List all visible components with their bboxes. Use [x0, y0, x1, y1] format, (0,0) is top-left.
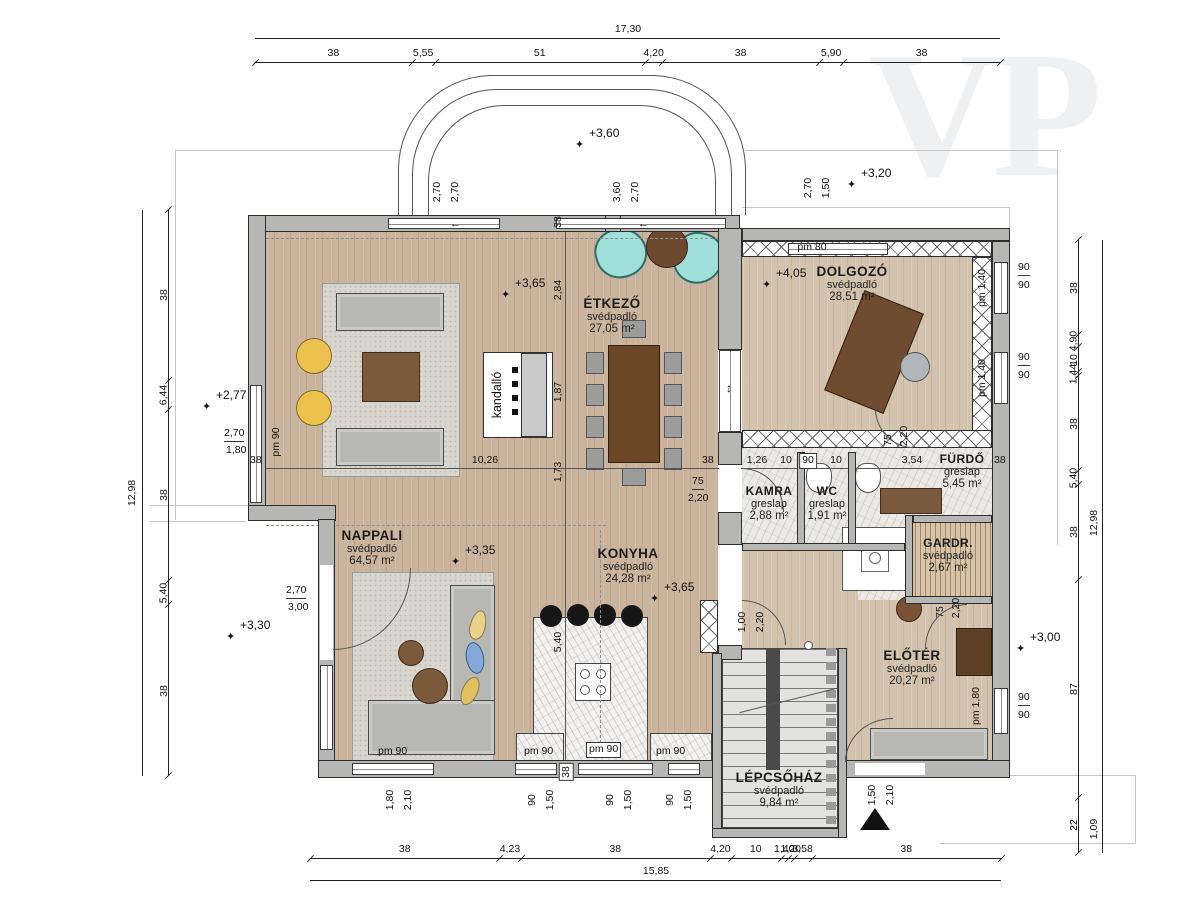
wall-segment — [905, 515, 913, 600]
dim-total-line — [255, 38, 1000, 39]
dim: 10 — [780, 455, 792, 467]
dim-chain-bottom: 384,23384,20101,401,203,5838 — [310, 858, 1001, 859]
wall-xhatch — [700, 600, 718, 653]
dim: 3,60 — [612, 182, 623, 202]
dim: 1,80 — [226, 445, 246, 457]
room-label-furdo: FÜRDŐ greslap 5,45 m² — [940, 452, 985, 490]
site-line — [175, 150, 400, 151]
dim: 75 — [883, 434, 894, 446]
dim: 1,50 — [867, 785, 878, 805]
level-value: +3,35 — [465, 543, 495, 557]
dim: 2,10 — [885, 785, 896, 805]
level-value: +3,65 — [515, 276, 545, 290]
wall-segment — [905, 596, 992, 604]
dim-total-line — [1102, 806, 1103, 853]
dim: 75 — [935, 606, 946, 618]
window — [668, 763, 700, 775]
arch-outline-inner — [428, 105, 716, 215]
coffee-table-round — [412, 668, 448, 704]
armchair-yellow — [296, 390, 332, 426]
room-label-gardrob: GARDR. svédpadló 2,67 m² — [923, 536, 973, 574]
dim: 90 — [1018, 280, 1030, 292]
fireplace-flue — [521, 353, 547, 437]
dim: pm 90 — [656, 746, 685, 758]
dim-segment: 5,90 — [821, 47, 841, 59]
window — [515, 763, 557, 775]
dim-segment: 4,20 — [643, 47, 663, 59]
ledge-line — [742, 207, 1010, 208]
level-value: +3,60 — [589, 126, 619, 140]
dim: 2,10 — [403, 790, 414, 810]
entry-door-opening — [855, 763, 925, 775]
slide-arrow-icon: ← — [638, 218, 649, 230]
dim: 90 — [1018, 352, 1030, 366]
dim: 1,50 — [683, 790, 694, 810]
dim: 2,20 — [951, 598, 962, 618]
dim: 2,70 — [630, 182, 641, 202]
level-marker-icon: ✦ — [1016, 642, 1025, 655]
dim: 2,70 — [224, 428, 244, 442]
dim: 2,20 — [688, 493, 708, 505]
dim: 38 — [994, 455, 1006, 467]
dim-segment: 38 — [1068, 418, 1080, 430]
door-opening — [719, 465, 741, 512]
window — [994, 688, 1008, 734]
dim: 38 — [702, 455, 714, 467]
bar-stool — [594, 604, 616, 626]
dim: 2,20 — [899, 426, 910, 446]
wall-segment — [742, 228, 1010, 241]
fireplace-label: kandalló — [491, 372, 504, 419]
room-label-wc: WC greslap 1,91 m² — [808, 484, 847, 522]
level-marker-icon: ✦ — [650, 592, 659, 605]
dim: 90 — [1018, 692, 1030, 706]
dim: 38 — [553, 216, 564, 228]
dim: 1,50 — [623, 790, 634, 810]
dim: 1,50 — [545, 790, 556, 810]
room-label-eloter: ELŐTÉR svédpadló 20,27 m² — [883, 648, 940, 687]
level-value: +3,65 — [664, 580, 694, 594]
wall-segment — [712, 653, 722, 838]
site-line — [745, 150, 1057, 151]
dim: 10,26 — [472, 455, 498, 467]
dining-chair — [664, 448, 682, 470]
dim-segment: 5,55 — [413, 47, 433, 59]
side-table-round — [646, 226, 688, 268]
dim-chain-right: 384,90101,44385,40388722 — [1078, 240, 1079, 853]
wall-segment — [718, 432, 742, 465]
dim: 90 — [1018, 262, 1030, 276]
level-marker-icon: ✦ — [202, 400, 211, 413]
sofa — [336, 293, 444, 331]
slide-arrow-icon: ↕ — [726, 382, 732, 395]
dim-segment: 38 — [1068, 282, 1080, 294]
wall-segment — [913, 515, 992, 523]
room-label-kamra: KAMRA greslap 2,88 m² — [746, 484, 793, 522]
dim: 90 — [605, 794, 616, 806]
floor-plan: VP kandalló — [0, 0, 1200, 919]
dim: 90 — [1018, 710, 1030, 722]
window — [352, 763, 434, 775]
level-marker-icon: ✦ — [847, 178, 856, 191]
site-line — [1010, 775, 1135, 776]
room-label-dolgozo: DOLGOZÓ svédpadló 28,51 m² — [816, 264, 887, 303]
bar-stool — [621, 605, 643, 627]
room-label-etkezo: ÉTKEZŐ svédpadló 27,05 m² — [583, 296, 640, 335]
dim-segment: 38 — [916, 47, 928, 59]
dim-segment: 38 — [735, 47, 747, 59]
dim-line — [565, 232, 566, 762]
dim-segment: 38 — [900, 843, 912, 855]
cooktop — [575, 663, 611, 701]
dim-segment: 6,44 — [157, 385, 169, 405]
dim-segment: 38 — [1068, 527, 1080, 539]
dim: 90 — [1018, 370, 1030, 382]
wall-segment — [742, 543, 905, 551]
dim-segment: 51 — [534, 47, 546, 59]
coffee-table — [362, 352, 420, 402]
level-value: +3,20 — [861, 166, 891, 180]
dining-table — [608, 345, 660, 463]
wall-segment — [848, 452, 856, 545]
wall-xhatch — [742, 430, 992, 448]
door-opening — [320, 565, 333, 660]
dim-total: 1,09 — [1089, 819, 1100, 839]
window — [994, 352, 1008, 404]
dim-total: 17,30 — [615, 24, 641, 36]
dim-segment: 4,20 — [710, 843, 730, 855]
dim: 90 — [527, 794, 538, 806]
dim: pm 1,40 — [977, 359, 988, 397]
level-value: +4,05 — [776, 266, 806, 280]
dining-chair — [664, 384, 682, 406]
wall-segment — [718, 512, 742, 545]
dim-total-line — [142, 210, 143, 776]
dim-segment: 38 — [328, 47, 340, 59]
level-value: +3,30 — [240, 618, 270, 632]
dim-segment: 38 — [399, 843, 411, 855]
site-line — [175, 150, 176, 520]
stair-railing — [826, 648, 836, 828]
dim-total: 15,85 — [643, 866, 669, 878]
room-label-nappali: NAPPALI svédpadló 64,57 m² — [341, 528, 402, 567]
dim-chain-top: 385,55514,20385,9038 — [255, 62, 1000, 63]
dim-total-line — [310, 880, 1001, 881]
dim: pm 1,80 — [971, 687, 982, 725]
dim: pm 90 — [524, 746, 553, 758]
bar-stool — [567, 604, 589, 626]
stair-stringer — [766, 648, 780, 770]
dim: 3,54 — [902, 455, 922, 467]
dim: 90 — [665, 794, 676, 806]
dining-chair — [586, 416, 604, 438]
dim: pm 1,40 — [977, 269, 988, 307]
site-line — [1135, 775, 1136, 843]
dining-chair — [622, 468, 646, 486]
dim: pm 90 — [271, 427, 282, 456]
dim: 75 — [692, 476, 704, 490]
dim: 2,70 — [450, 182, 461, 202]
room-label-lepcsohaz: LÉPCSŐHÁZ svédpadló 9,84 m² — [736, 770, 823, 809]
dim-segment: 38 — [609, 843, 621, 855]
dim: 1,80 — [385, 790, 396, 810]
dining-chair — [664, 416, 682, 438]
dim: 1,00 — [737, 612, 748, 632]
dim: 38 — [250, 455, 262, 467]
dim-segment: 38 — [158, 489, 170, 501]
site-line — [1057, 150, 1058, 545]
wall-segment — [718, 228, 742, 350]
dim: 2,20 — [755, 612, 766, 632]
dashed-line — [266, 238, 718, 239]
dim-segment: 3,58 — [792, 843, 812, 855]
entrance-marker — [860, 808, 890, 830]
sofa — [336, 428, 444, 466]
dim-segment: 4,23 — [500, 843, 520, 855]
window — [388, 218, 500, 229]
dim-segment: 10 — [750, 843, 762, 855]
level-marker-icon: ✦ — [762, 278, 771, 291]
dim: 5,40 — [553, 632, 564, 652]
dining-chair — [664, 352, 682, 374]
dining-chair — [586, 384, 604, 406]
dim: 2,70 — [803, 178, 814, 198]
dim-segment: 38 — [158, 290, 170, 302]
vanity-cabinet — [880, 488, 942, 514]
dim: pm 90 — [586, 742, 621, 758]
dim: 1,87 — [553, 382, 564, 402]
level-marker-icon: ✦ — [501, 288, 510, 301]
dim: 1,73 — [553, 462, 564, 482]
dim-line — [266, 468, 1008, 469]
dim-total: 12,98 — [127, 480, 138, 506]
dim-total-line — [1102, 240, 1103, 806]
dim: 90 — [799, 453, 817, 469]
level-marker-icon: ✦ — [575, 138, 584, 151]
level-marker-icon: ✦ — [226, 630, 235, 643]
dim: 1,26 — [747, 455, 767, 467]
watermark: VP — [868, 34, 1096, 196]
level-value: +2,77 — [216, 388, 246, 402]
site-line — [940, 843, 1136, 844]
room-label-konyha: KONYHA svédpadló 24,28 m² — [598, 546, 659, 585]
bar-stool — [540, 605, 562, 627]
dim-segment: 22 — [1068, 820, 1080, 832]
window — [578, 763, 653, 775]
window — [250, 385, 262, 503]
exterior-notch — [246, 521, 318, 783]
dim: 1,50 — [821, 178, 832, 198]
window — [994, 262, 1008, 314]
level-value: +3,00 — [1030, 630, 1060, 644]
dim-chain-left: 386,44385,4038 — [168, 210, 169, 776]
dining-chair — [586, 448, 604, 470]
desk-chair — [900, 352, 930, 382]
wall-segment — [838, 648, 847, 838]
armchair-yellow — [296, 338, 332, 374]
dim: 3,00 — [288, 602, 308, 614]
dim: 2,70 — [286, 585, 306, 599]
dim: pm 90 — [378, 746, 407, 758]
dim-segment: 5,40 — [157, 583, 169, 603]
dim: 2,84 — [553, 280, 564, 300]
dining-chair — [586, 352, 604, 374]
dim-total: 12,98 — [1089, 510, 1100, 536]
coffee-table-round — [398, 640, 424, 666]
ledge-line — [1009, 207, 1010, 229]
dim: pm 80 — [797, 242, 826, 254]
window — [320, 665, 333, 750]
dim: 38 — [559, 763, 574, 781]
dim-segment: 38 — [158, 685, 170, 697]
passage-opening — [719, 545, 741, 598]
dim: 2,70 — [432, 182, 443, 202]
level-marker-icon: ✦ — [451, 555, 460, 568]
dim-segment: 87 — [1068, 683, 1080, 695]
stair-post — [804, 641, 813, 650]
dim: 10 — [830, 455, 842, 467]
dashed-line — [266, 525, 606, 526]
slide-arrow-icon: ← — [450, 218, 461, 230]
wall-segment — [712, 828, 845, 838]
